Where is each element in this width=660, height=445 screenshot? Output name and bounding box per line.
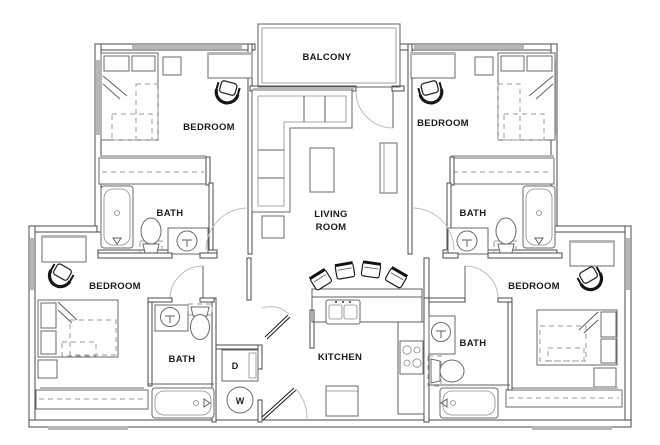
double-sink-icon	[326, 300, 360, 324]
bar-stool-icon	[361, 262, 381, 278]
bar-stool-icon	[335, 263, 355, 280]
bath-bottom-left: BATH	[148, 298, 216, 422]
sink-icon	[168, 228, 208, 254]
bath-top-left: BATH	[98, 155, 248, 258]
nightstand	[475, 57, 493, 75]
living-room-label-line1: LIVING	[314, 209, 347, 220]
kitchen-label: KITCHEN	[318, 352, 362, 363]
bar-stools	[310, 262, 408, 291]
desk	[208, 52, 252, 78]
bedroom-top-left: BEDROOM	[101, 52, 252, 140]
bedroom-bottom-left-label: BEDROOM	[89, 281, 141, 292]
side-table	[262, 216, 284, 238]
sink-icon	[429, 316, 455, 354]
sink-icon	[155, 305, 188, 331]
bathtub-icon	[101, 186, 133, 248]
living-room: LIVING ROOM	[252, 88, 397, 238]
bath-bottom-right-label: BATH	[460, 338, 487, 349]
bath-top-right-label: BATH	[460, 208, 487, 219]
bathtub-icon	[152, 388, 214, 418]
sofa-icon	[252, 88, 352, 212]
bar-stool-icon	[310, 269, 333, 290]
bath-bottom-left-label: BATH	[169, 354, 196, 365]
floor-plan-drawing: BALCONY BEDROOM BATH	[0, 0, 660, 445]
bed-icon	[537, 310, 617, 365]
desk-chair-icon	[576, 264, 606, 293]
dryer-label: D	[232, 361, 239, 371]
coffee-table	[310, 148, 334, 192]
bath-top-right: BATH	[412, 155, 557, 258]
bedroom-top-right-label: BEDROOM	[417, 118, 469, 129]
bathtub-icon	[440, 388, 498, 418]
bedroom-top-right: BEDROOM	[411, 52, 555, 140]
dresser	[506, 387, 622, 407]
kitchen: KITCHEN	[247, 258, 429, 422]
nightstand	[163, 57, 181, 75]
stove-icon	[398, 322, 424, 414]
bed-icon	[101, 53, 158, 140]
bar-stool-icon	[385, 267, 408, 288]
desk-chair-icon	[214, 79, 241, 105]
dresser	[36, 387, 148, 409]
bath-bottom-right: BATH	[428, 298, 512, 418]
closet	[450, 158, 554, 184]
dryer-icon	[222, 350, 258, 381]
tv-console	[380, 143, 397, 193]
bedroom-top-left-label: BEDROOM	[183, 122, 235, 133]
entry-doors	[261, 307, 307, 420]
desk-chair-icon	[45, 261, 75, 290]
closet	[99, 158, 207, 184]
toilet-icon	[188, 304, 212, 340]
living-room-label-line2: ROOM	[316, 222, 347, 233]
laundry-closet: D W	[216, 345, 262, 422]
balcony-label: BALCONY	[302, 52, 351, 63]
floor-plan: BALCONY BEDROOM BATH	[0, 0, 660, 445]
desk-chair-icon	[418, 79, 445, 105]
desk	[570, 240, 614, 266]
sink-icon	[448, 228, 488, 254]
bed-icon	[498, 53, 555, 140]
desk	[42, 235, 86, 262]
desk	[411, 52, 455, 78]
fridge-icon	[326, 386, 358, 416]
toilet-icon	[428, 356, 464, 386]
bed-icon	[38, 300, 118, 357]
bath-top-left-label: BATH	[157, 208, 184, 219]
bathtub-icon	[523, 186, 555, 248]
washer-label: W	[236, 396, 245, 406]
bedroom-bottom-right-label: BEDROOM	[508, 281, 560, 292]
nightstand	[594, 368, 616, 387]
nightstand	[38, 360, 57, 378]
